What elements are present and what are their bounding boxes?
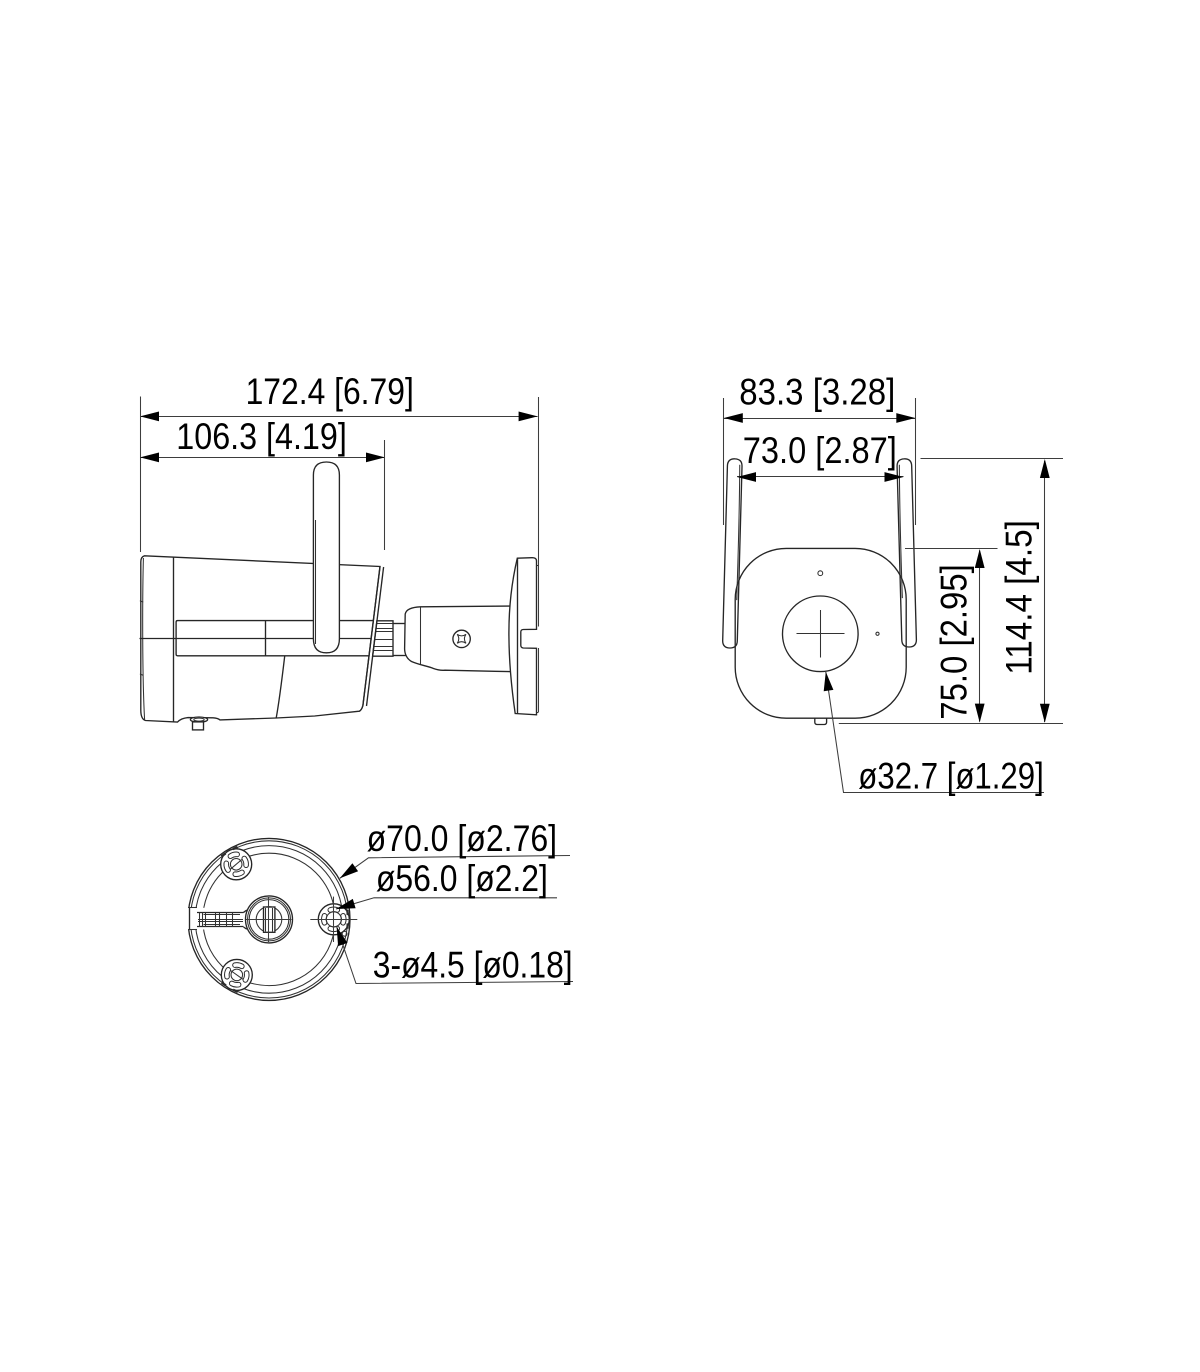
svg-text:172.4 [6.79]: 172.4 [6.79] (246, 371, 414, 412)
svg-text:83.3 [3.28]: 83.3 [3.28] (739, 372, 895, 413)
svg-text:3-ø4.5 [ø0.18]: 3-ø4.5 [ø0.18] (373, 944, 573, 985)
svg-text:ø70.0 [ø2.76]: ø70.0 [ø2.76] (367, 818, 557, 859)
svg-text:ø32.7 [ø1.29]: ø32.7 [ø1.29] (858, 756, 1044, 797)
svg-text:ø56.0 [ø2.2]: ø56.0 [ø2.2] (376, 858, 548, 899)
svg-text:106.3 [4.19]: 106.3 [4.19] (176, 416, 346, 457)
svg-text:75.0 [2.95]: 75.0 [2.95] (933, 564, 974, 720)
svg-text:73.0 [2.87]: 73.0 [2.87] (743, 430, 897, 471)
svg-text:114.4 [4.5]: 114.4 [4.5] (998, 520, 1039, 675)
